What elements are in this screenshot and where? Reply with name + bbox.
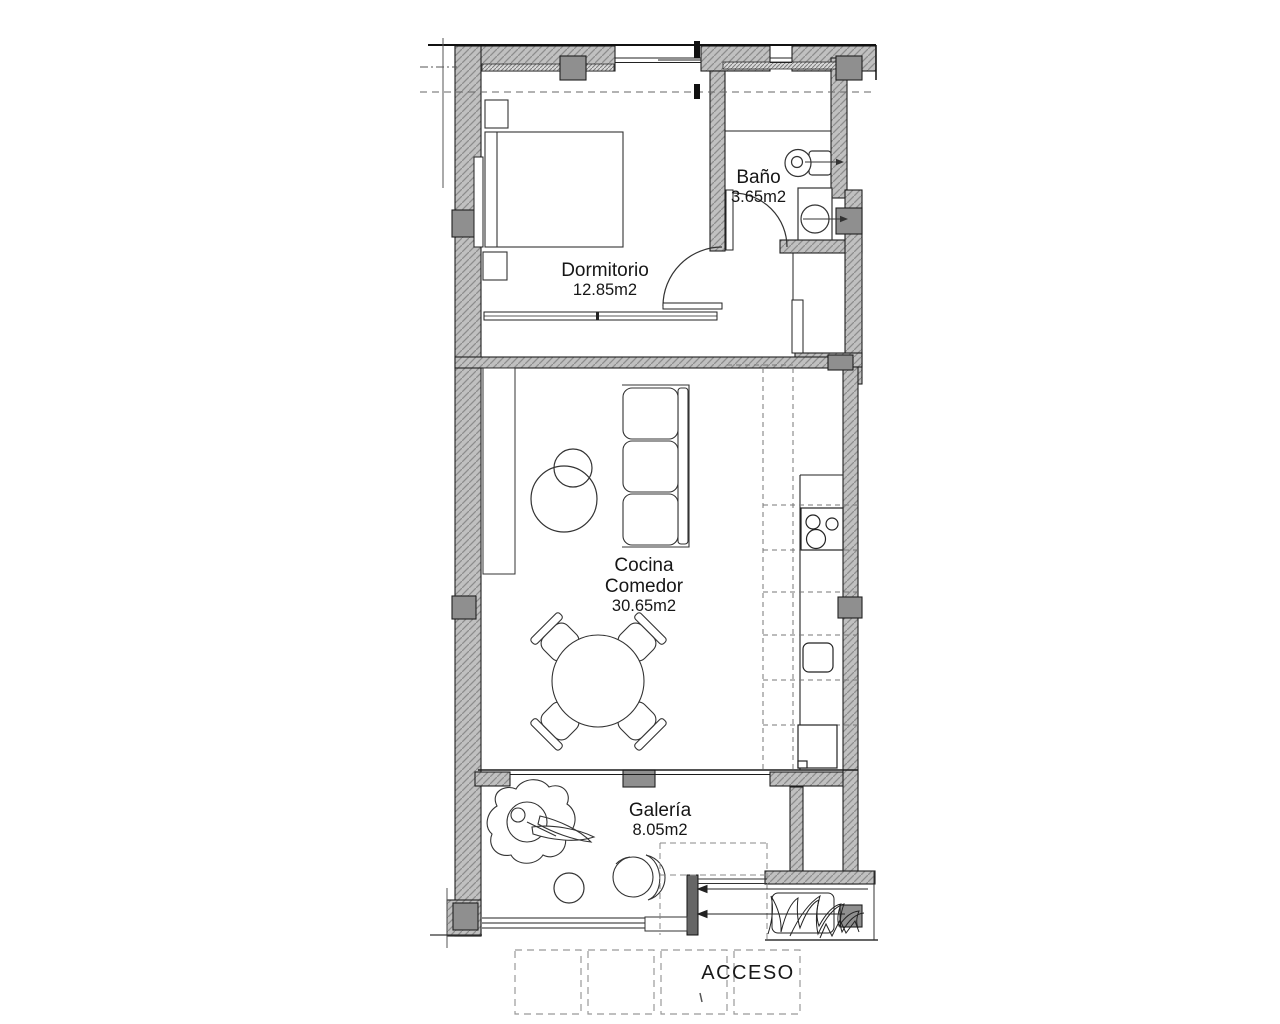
window-sill-galeria <box>645 917 687 931</box>
wardrobe <box>484 312 717 320</box>
window-left-bedroom <box>474 157 483 247</box>
dining-set <box>530 612 668 752</box>
paving-tick <box>700 993 702 1002</box>
window-division-tick <box>694 84 700 99</box>
coffee-table <box>531 449 597 532</box>
plant-galeria <box>487 780 594 864</box>
side-table <box>554 873 584 903</box>
kitchen-sink <box>803 643 833 672</box>
entry-post <box>687 875 698 935</box>
duct-shaft <box>792 253 803 353</box>
dining-table <box>552 635 644 727</box>
sofa <box>622 385 689 547</box>
floor-plan: Dormitorio 12.85m2 Baño 3.65m2 Cocina Co… <box>0 0 1280 1024</box>
armchair <box>613 855 665 900</box>
window-galeria <box>482 918 645 928</box>
fridge <box>798 725 837 768</box>
bed <box>483 100 623 280</box>
window-division-tick <box>694 41 700 58</box>
kitchen-dashed-guides <box>727 365 862 770</box>
door-bathroom <box>726 190 787 250</box>
hob <box>801 508 843 550</box>
entrance-label: ACCESO <box>668 962 828 985</box>
sideboard <box>483 368 515 574</box>
door-bedroom <box>663 247 722 309</box>
entrance-steps <box>698 879 767 884</box>
window-top-bedroom <box>615 56 701 65</box>
floor-plan-drawing <box>0 0 1280 1024</box>
